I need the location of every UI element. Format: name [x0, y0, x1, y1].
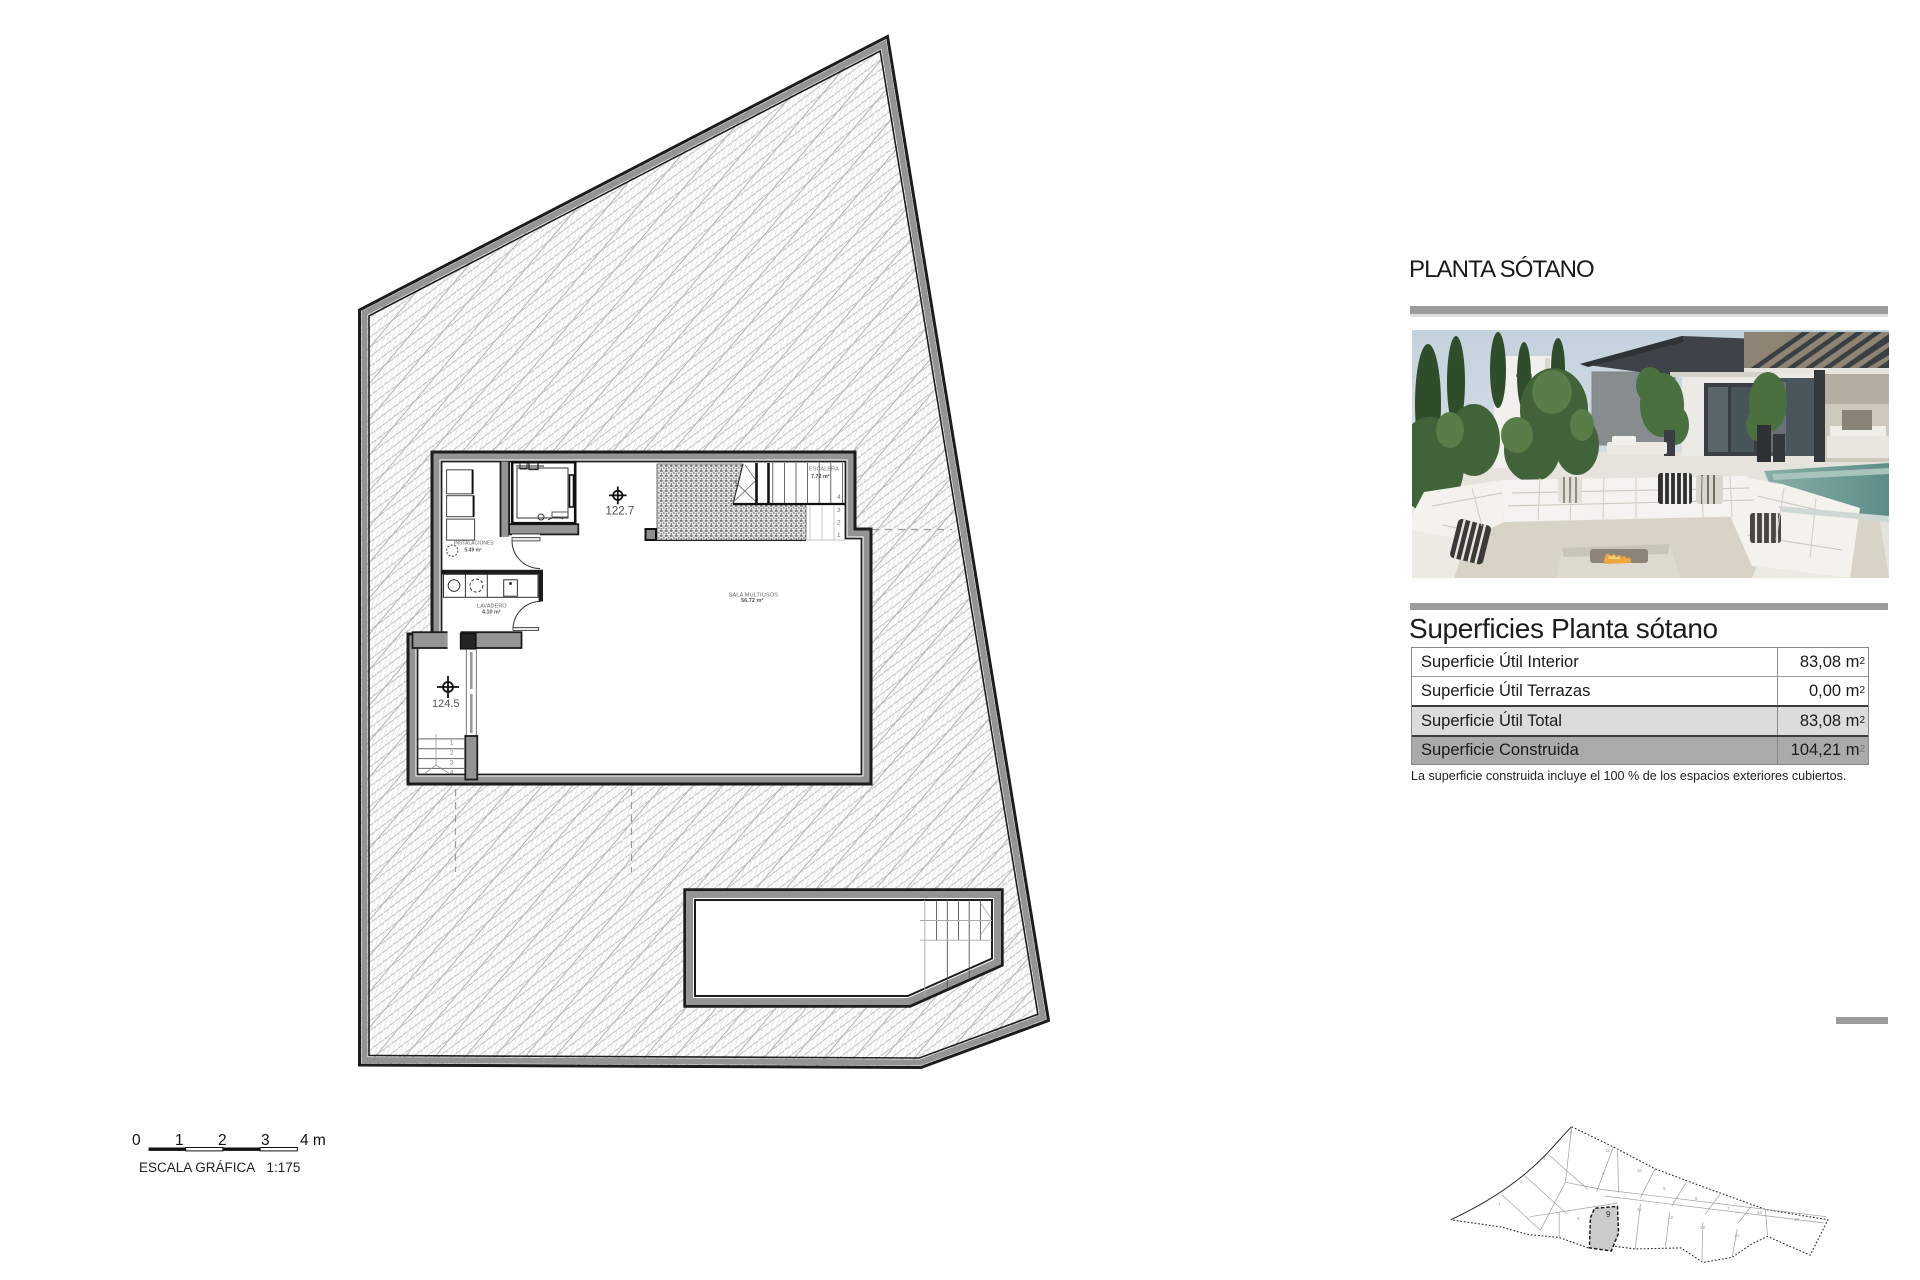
- svg-text:10: 10: [1637, 1168, 1643, 1173]
- svg-text:5: 5: [1570, 1130, 1573, 1135]
- svg-text:2: 2: [218, 1132, 227, 1149]
- svg-text:7: 7: [1556, 1211, 1559, 1216]
- svg-text:13: 13: [1734, 1233, 1740, 1238]
- svg-text:13: 13: [1700, 1225, 1706, 1230]
- svg-text:7.72 m²: 7.72 m²: [811, 474, 830, 480]
- svg-text:12: 12: [1668, 1215, 1674, 1220]
- svg-text:2: 2: [1520, 1179, 1523, 1184]
- svg-text:ESCALA GRÁFICA 1:175: ESCALA GRÁFICA 1:175: [139, 1160, 300, 1175]
- svg-text:124.5: 124.5: [432, 698, 460, 710]
- svg-text:4 m: 4 m: [300, 1132, 326, 1149]
- svg-text:7: 7: [1727, 1206, 1730, 1211]
- svg-text:15: 15: [1757, 1210, 1763, 1215]
- svg-text:56.72 m²: 56.72 m²: [741, 597, 764, 604]
- svg-text:1: 1: [175, 1132, 184, 1149]
- svg-text:8: 8: [1695, 1196, 1698, 1201]
- svg-text:0: 0: [132, 1132, 141, 1149]
- svg-text:3: 3: [261, 1132, 270, 1149]
- svg-text:2: 2: [837, 520, 841, 527]
- svg-text:11: 11: [1605, 1148, 1610, 1153]
- svg-text:11: 11: [1637, 1207, 1642, 1212]
- svg-text:4.10 m²: 4.10 m²: [482, 610, 501, 616]
- svg-text:9: 9: [1663, 1186, 1666, 1191]
- svg-text:8: 8: [1577, 1216, 1580, 1221]
- svg-text:INSTALACIONES: INSTALACIONES: [454, 541, 494, 547]
- svg-text:6: 6: [1602, 1171, 1605, 1176]
- svg-text:4: 4: [837, 494, 841, 501]
- svg-text:4: 4: [1543, 1156, 1546, 1161]
- svg-text:5.49 m²: 5.49 m²: [465, 548, 483, 554]
- svg-text:122.7: 122.7: [606, 506, 635, 518]
- svg-text:9: 9: [1606, 1210, 1611, 1219]
- svg-text:16: 16: [1794, 1217, 1800, 1222]
- svg-text:1: 1: [1498, 1201, 1501, 1206]
- svg-text:3: 3: [837, 507, 841, 514]
- svg-text:ESCALERA: ESCALERA: [809, 467, 839, 473]
- svg-text:1: 1: [837, 532, 841, 539]
